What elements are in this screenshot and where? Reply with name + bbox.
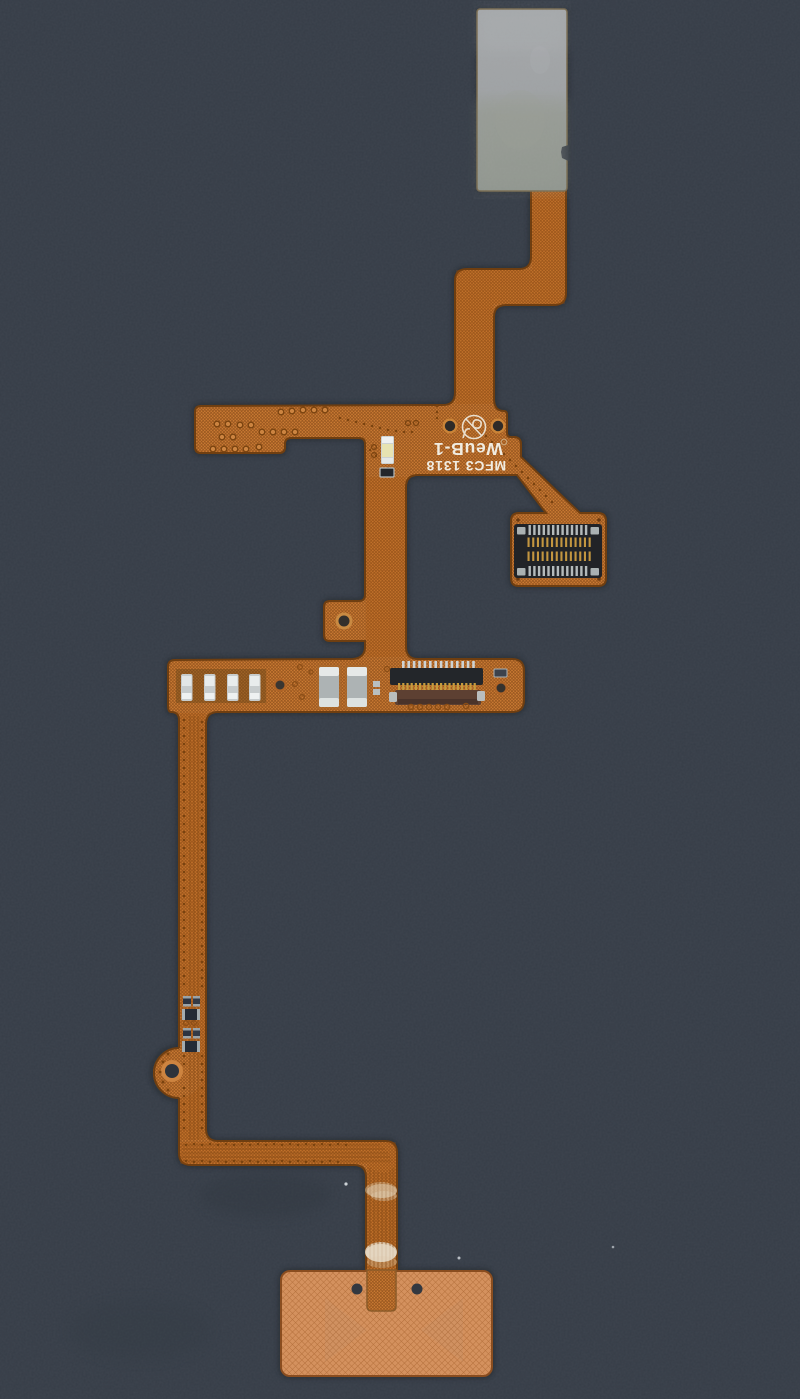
svg-text:WeuB-1: WeuB-1 [433, 439, 503, 459]
svg-text:MFC3 1318: MFC3 1318 [426, 458, 506, 474]
